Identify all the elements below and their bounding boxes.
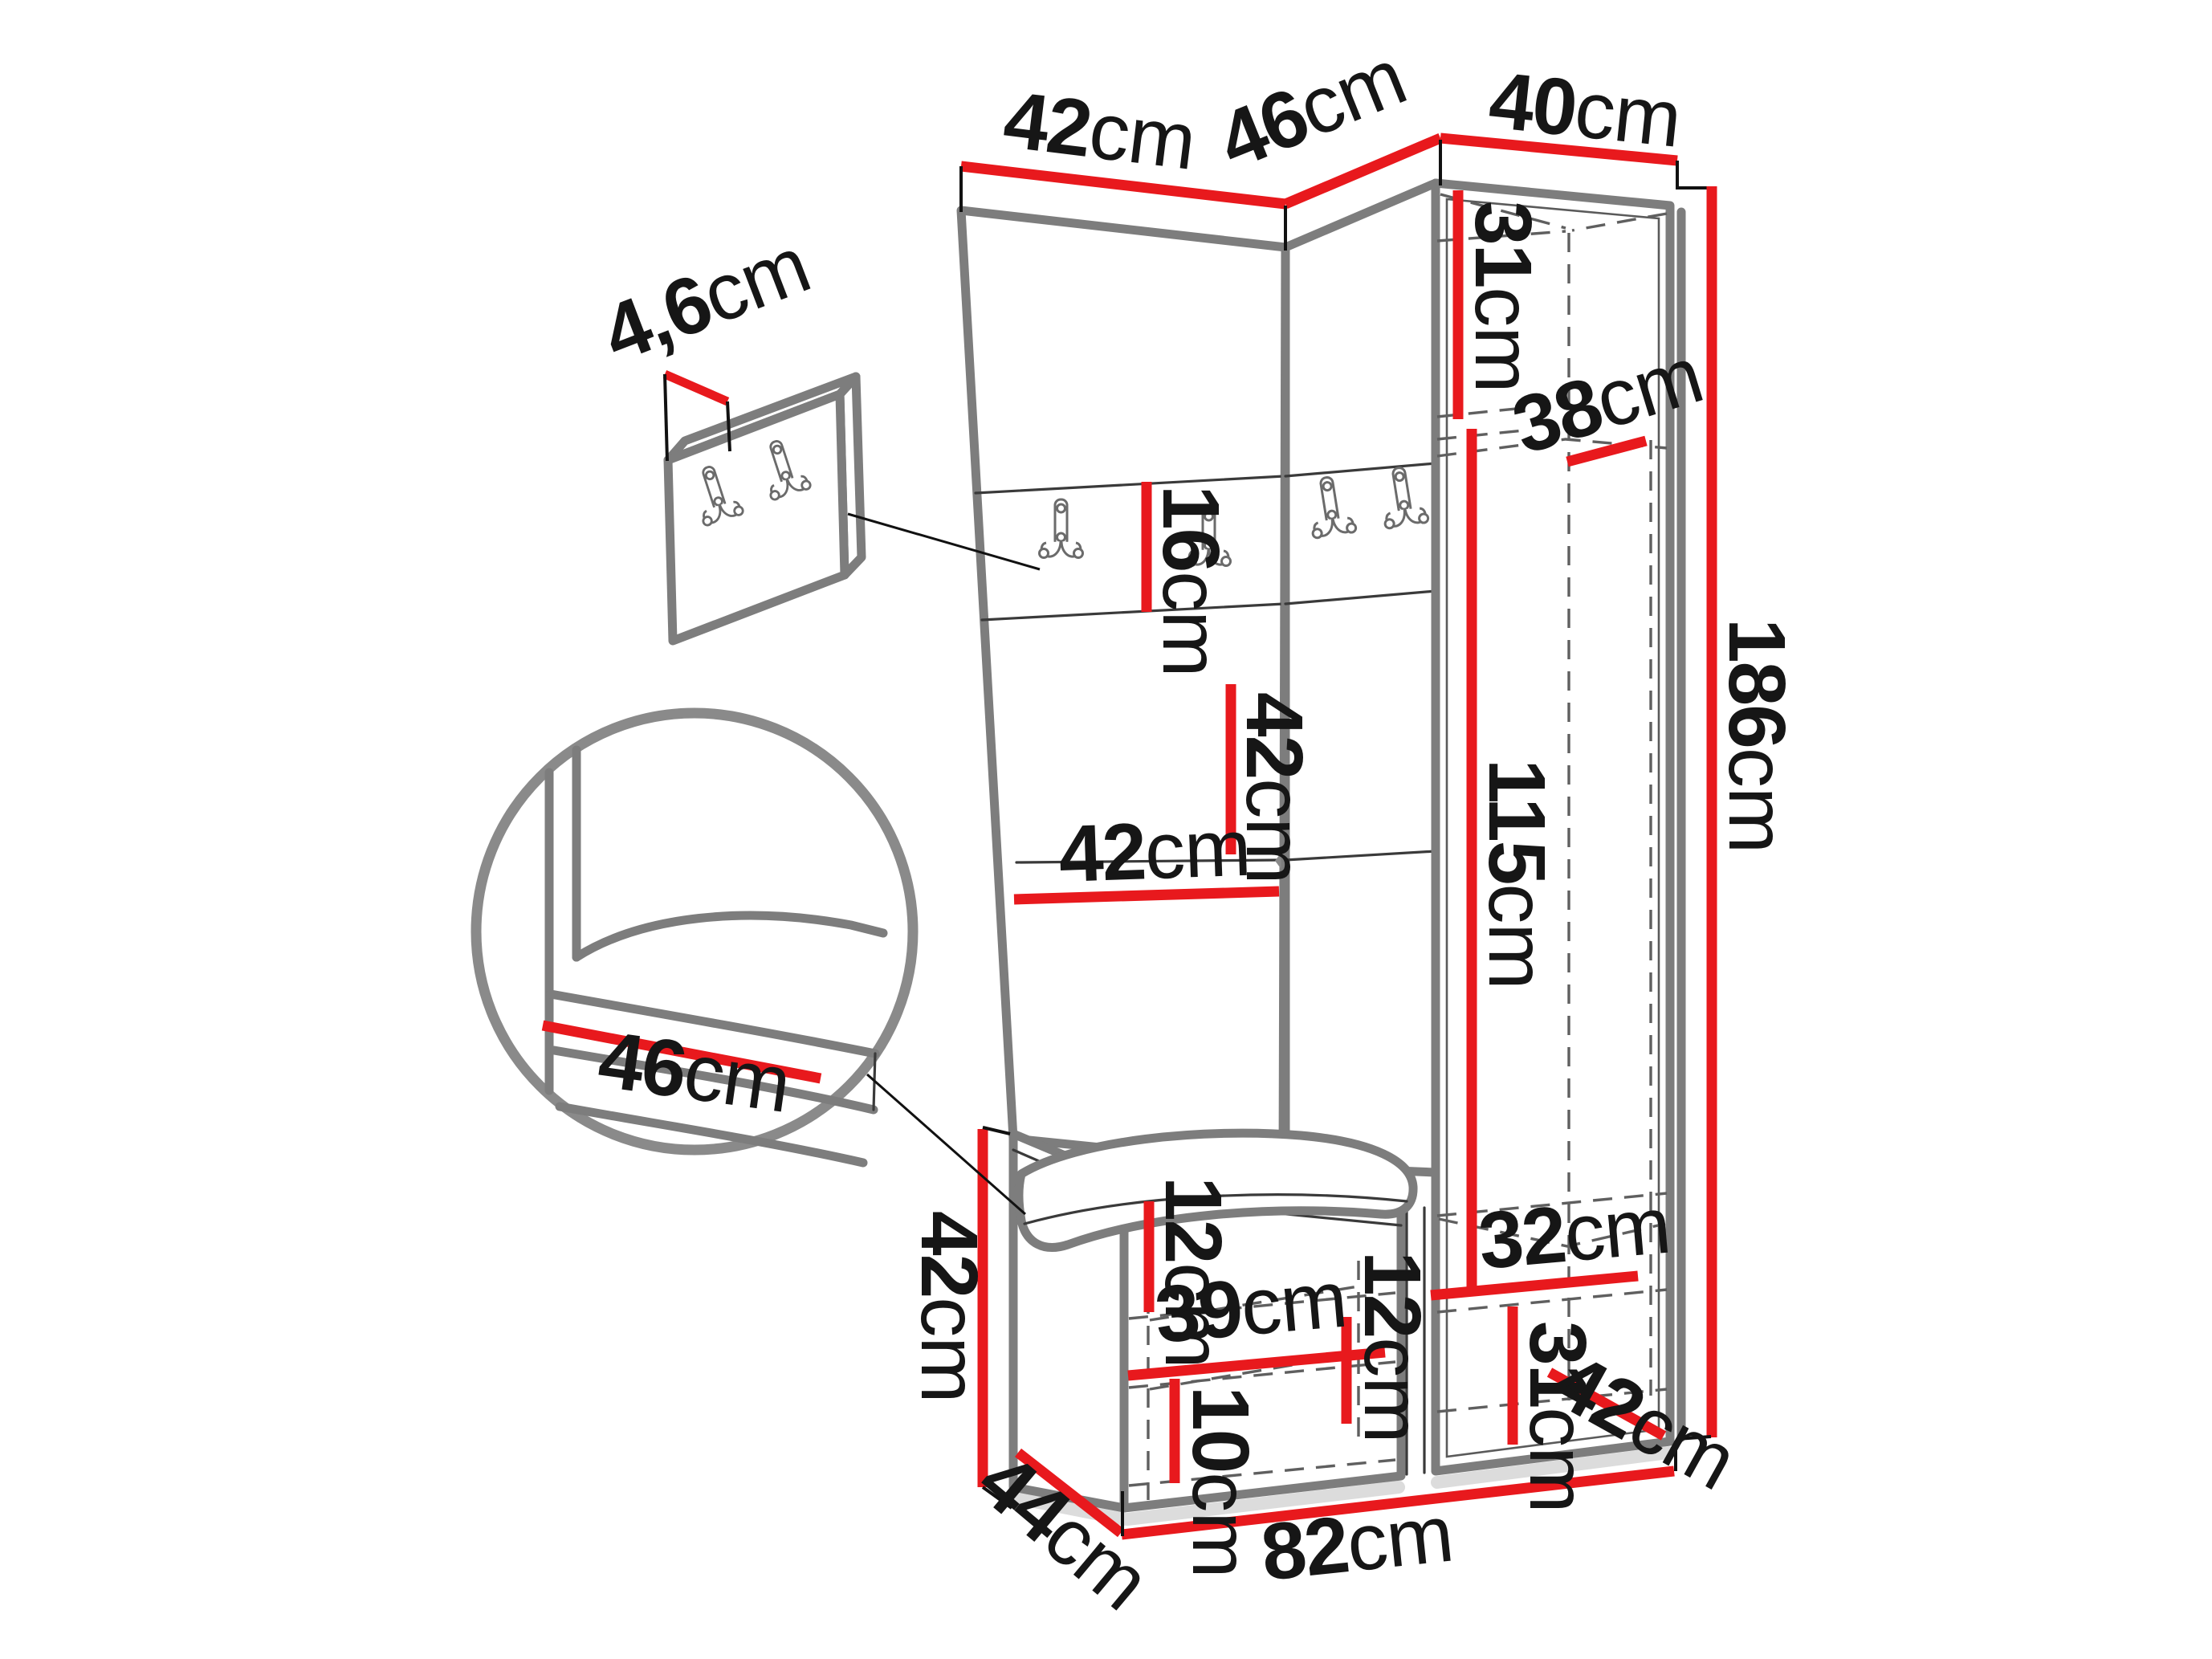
- furniture-dimension-diagram: 42cm 46cm 40cm 16cm 31cm 38cm 42cm 42cm …: [0, 0, 2212, 1659]
- label-panel-thickness: 4,6cm: [591, 219, 821, 379]
- corner-panel: [1285, 183, 1436, 1172]
- corner-panel-face: [1285, 183, 1436, 1172]
- label-bench-shelf-width: 39cm: [1151, 1254, 1350, 1360]
- hook-panel-front-face: [668, 394, 845, 641]
- label-hook-strip-height: 16cm: [1146, 485, 1236, 677]
- left-panel-column: [961, 210, 1289, 1166]
- label-lower-shelf-width: 32cm: [1475, 1180, 1673, 1286]
- diagram-canvas: 42cm 46cm 40cm 16cm 31cm 38cm 42cm 42cm …: [0, 0, 2212, 1659]
- left-panel-front-face: [961, 210, 1285, 1166]
- label-total-height: 186cm: [1712, 618, 1802, 853]
- label-upper-section-height: 31cm: [1458, 201, 1548, 393]
- seat-detail-circle: 46cm: [476, 713, 1025, 1214]
- label-plinth-height: 10cm: [1175, 1386, 1265, 1578]
- leader-line: [867, 1074, 1025, 1214]
- dimension-line-panel-thickness: [665, 374, 727, 402]
- label-bench-height: 42cm: [904, 1211, 994, 1403]
- label-mid-panel-width: 42cm: [1057, 803, 1252, 899]
- label-base-width: 82cm: [1257, 1489, 1457, 1598]
- label-corner-clearance: 12cm: [1347, 1251, 1437, 1443]
- label-hanging-height: 115cm: [1472, 759, 1562, 989]
